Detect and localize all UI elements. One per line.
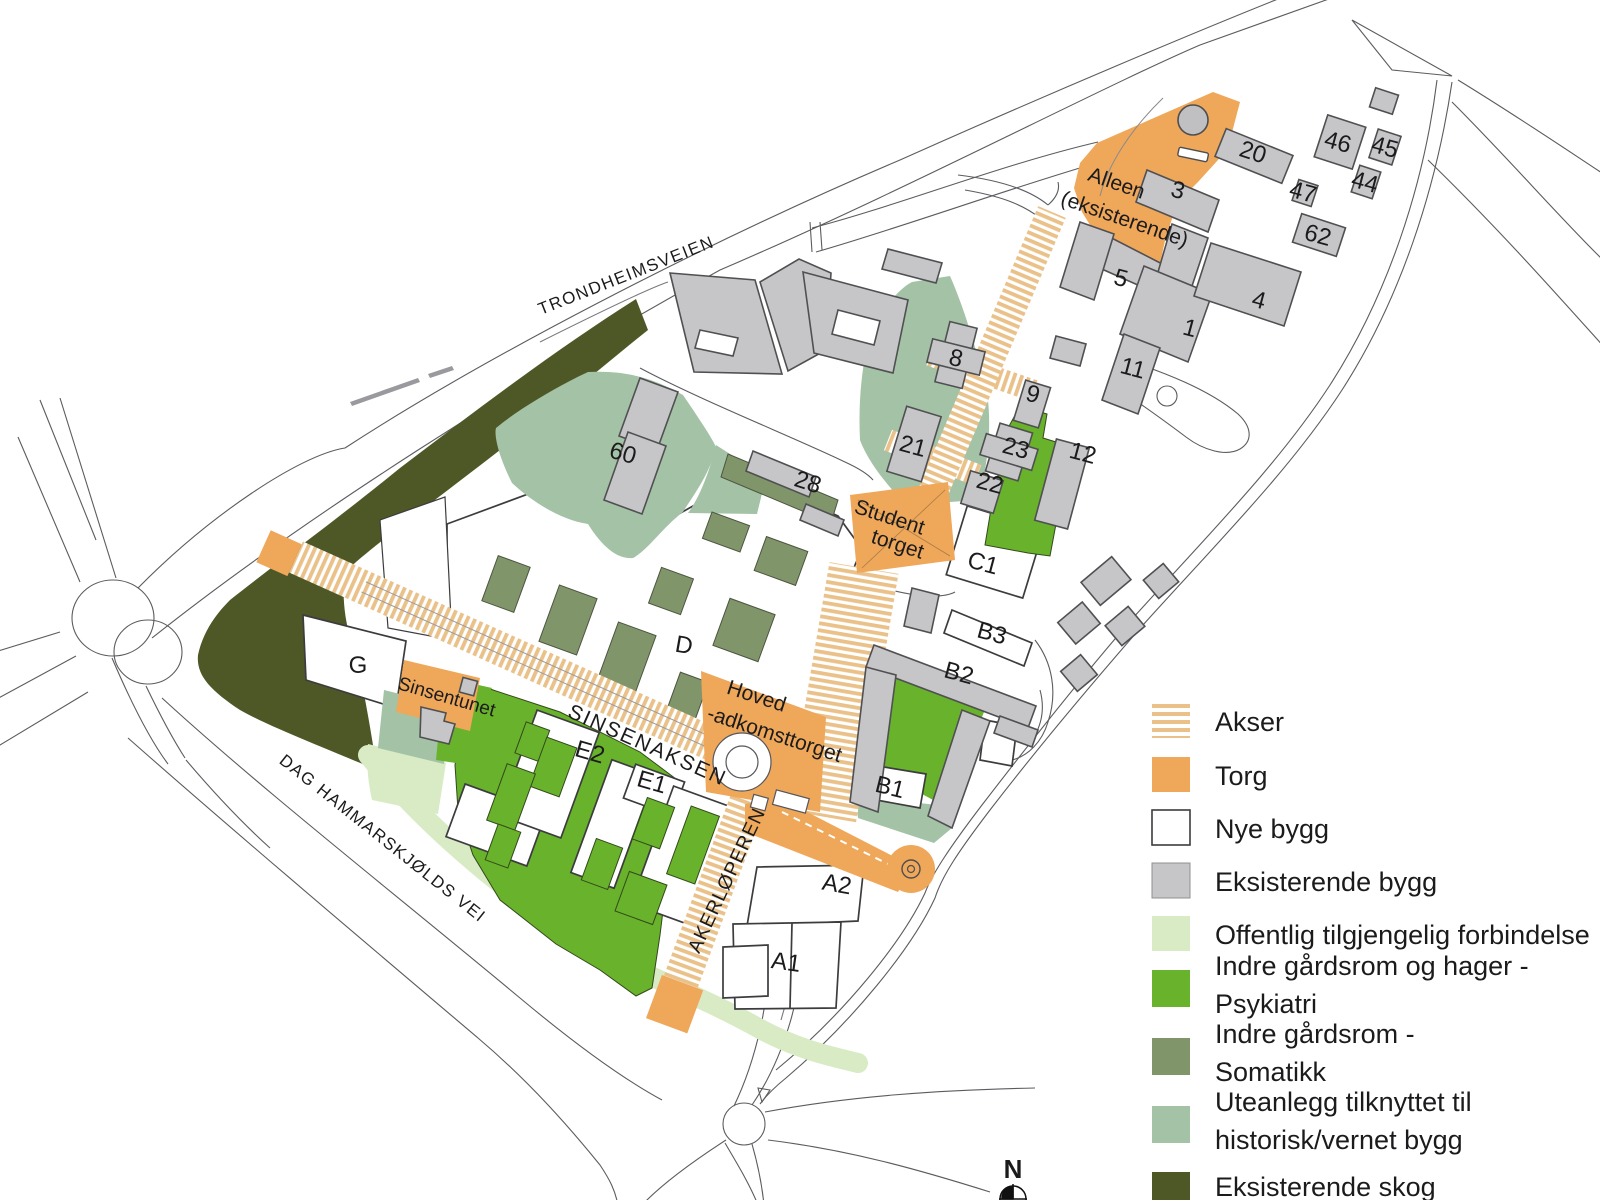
svg-text:Torg: Torg — [1215, 761, 1268, 791]
svg-text:N: N — [1004, 1154, 1023, 1184]
svg-text:A2: A2 — [820, 869, 854, 901]
svg-text:Indre gårdsrom og hager -: Indre gårdsrom og hager - — [1215, 951, 1529, 981]
svg-text:Psykiatri: Psykiatri — [1215, 989, 1317, 1019]
svg-text:Offentlig tilgjengelig forbind: Offentlig tilgjengelig forbindelse — [1215, 920, 1590, 950]
svg-text:Uteanlegg tilknyttet til: Uteanlegg tilknyttet til — [1215, 1087, 1472, 1117]
svg-text:G: G — [349, 652, 368, 679]
svg-text:Eksisterende bygg: Eksisterende bygg — [1215, 867, 1437, 897]
svg-text:historisk/vernet bygg: historisk/vernet bygg — [1215, 1125, 1463, 1155]
svg-text:Eksisterende skog: Eksisterende skog — [1215, 1172, 1436, 1200]
svg-text:Somatikk: Somatikk — [1215, 1057, 1327, 1087]
svg-text:Nye bygg: Nye bygg — [1215, 814, 1329, 844]
svg-text:A1: A1 — [770, 947, 803, 978]
svg-text:Indre gårdsrom -: Indre gårdsrom - — [1215, 1019, 1415, 1049]
svg-text:Akser: Akser — [1215, 707, 1284, 737]
